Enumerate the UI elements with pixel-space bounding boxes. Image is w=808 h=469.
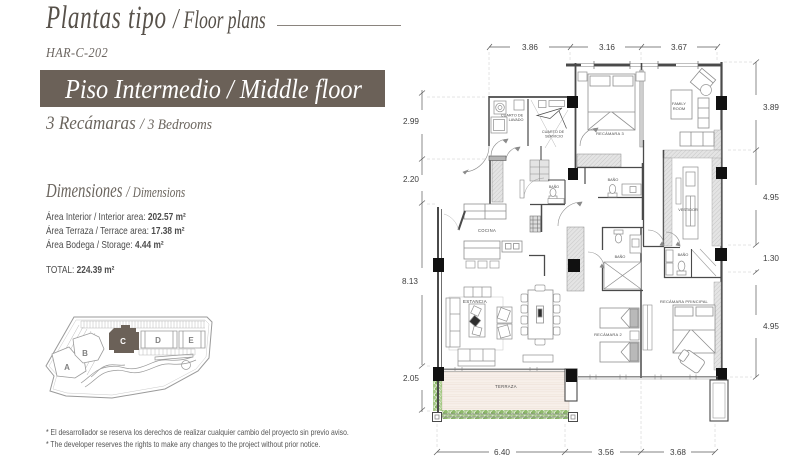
svg-text:CUARTO DE: CUARTO DE	[542, 130, 565, 134]
svg-text:ROOM: ROOM	[673, 106, 685, 111]
svg-text:3.89: 3.89	[763, 103, 779, 112]
svg-text:3.16: 3.16	[599, 43, 615, 52]
svg-text:BAÑO: BAÑO	[608, 177, 619, 182]
svg-text:BAÑO: BAÑO	[678, 252, 689, 257]
svg-text:RECÁMARA 2: RECÁMARA 2	[594, 332, 622, 337]
svg-text:LAVADO: LAVADO	[509, 118, 524, 122]
svg-text:BAÑO: BAÑO	[549, 184, 559, 189]
svg-text:2.99: 2.99	[403, 117, 419, 126]
svg-text:2.20: 2.20	[403, 175, 419, 184]
svg-text:8.13: 8.13	[402, 277, 418, 286]
svg-text:4.95: 4.95	[763, 193, 779, 202]
svg-text:3.67: 3.67	[671, 43, 687, 52]
svg-text:2.05: 2.05	[403, 374, 419, 383]
svg-text:ESTANCIA: ESTANCIA	[463, 299, 487, 304]
svg-text:4.95: 4.95	[763, 322, 779, 331]
svg-text:3.68: 3.68	[670, 448, 686, 457]
svg-text:E: E	[188, 336, 194, 345]
svg-text:SERVICIO: SERVICIO	[545, 135, 563, 139]
svg-text:COCINA: COCINA	[478, 228, 496, 233]
svg-text:CUARTO DE: CUARTO DE	[501, 114, 524, 118]
svg-text:TERRAZA: TERRAZA	[495, 384, 517, 389]
svg-text:RECÁMARA PRINCIPAL: RECÁMARA PRINCIPAL	[660, 299, 709, 304]
svg-text:C: C	[120, 337, 126, 346]
svg-text:RECÁMARA 3: RECÁMARA 3	[596, 131, 624, 136]
svg-text:3.56: 3.56	[598, 448, 614, 457]
svg-text:A: A	[64, 363, 70, 372]
svg-text:B: B	[82, 349, 88, 358]
svg-text:3.86: 3.86	[522, 43, 538, 52]
svg-text:1.30: 1.30	[763, 254, 779, 263]
svg-text:D: D	[155, 336, 161, 345]
svg-text:BAÑO: BAÑO	[615, 254, 626, 259]
svg-text:6.40: 6.40	[494, 448, 510, 457]
svg-text:VESTIDOR: VESTIDOR	[678, 208, 698, 212]
